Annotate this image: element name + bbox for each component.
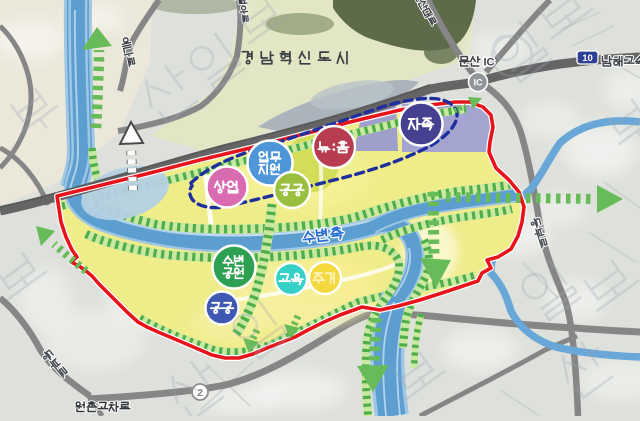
svg-text:10: 10: [582, 53, 593, 64]
svg-text:2: 2: [197, 387, 203, 399]
svg-text:IC: IC: [474, 78, 484, 88]
